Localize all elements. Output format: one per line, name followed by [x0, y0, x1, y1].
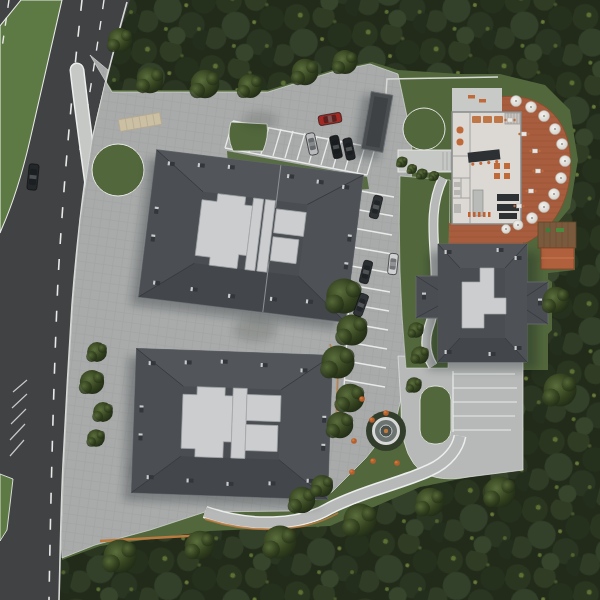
white-car-driving — [387, 253, 398, 275]
kitchen-blocks — [497, 194, 519, 219]
umbrella — [557, 139, 568, 150]
umbrella — [527, 213, 538, 224]
fountain-center — [384, 429, 388, 433]
umbrella — [526, 102, 537, 113]
umbrella — [550, 124, 561, 135]
umbrella — [513, 220, 523, 230]
orange-shrub — [370, 458, 376, 464]
orange-shrub — [351, 438, 357, 444]
pavilion-zone — [538, 222, 576, 269]
lounger — [479, 99, 486, 103]
lounger — [468, 95, 475, 99]
umbrella — [556, 173, 567, 184]
entry-lawn-circle — [403, 108, 445, 150]
umbrella — [539, 202, 550, 213]
orange-shrub — [369, 417, 375, 423]
orange-shrub — [383, 410, 389, 416]
orange-shrub — [394, 460, 400, 466]
north-patio — [452, 88, 502, 112]
pavilion-roof — [541, 248, 574, 269]
orange-shrub — [359, 396, 365, 402]
parking-loop-island — [420, 386, 451, 444]
corner-lawn-circle — [92, 144, 144, 196]
site-plan-render — [0, 0, 600, 600]
umbrella — [549, 189, 560, 200]
orange-shrub — [349, 469, 355, 475]
play-item — [546, 228, 551, 233]
umbrella — [539, 111, 550, 122]
restaurant-interior — [452, 112, 521, 224]
fountain-garden — [366, 411, 406, 451]
umbrella — [560, 156, 571, 167]
sofas — [472, 116, 503, 123]
site-plan-canvas — [0, 0, 600, 600]
play-item — [556, 228, 564, 232]
umbrella — [502, 225, 511, 234]
building-south — [132, 349, 333, 500]
umbrella — [511, 96, 522, 107]
